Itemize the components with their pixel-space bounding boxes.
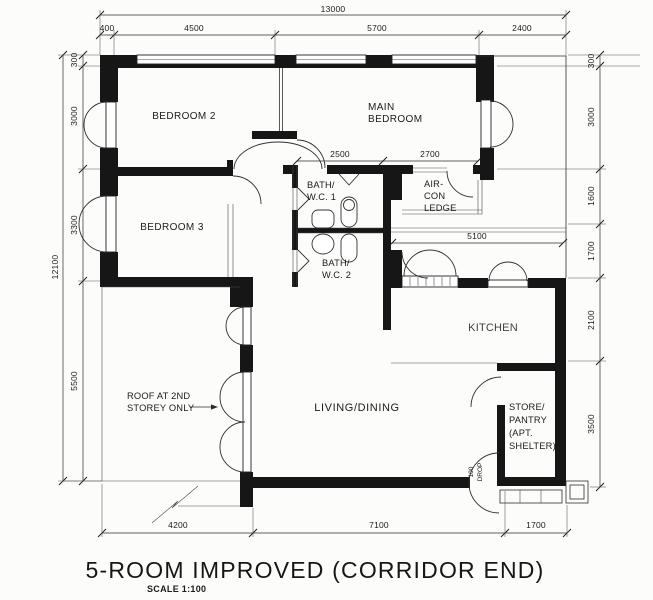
break-line <box>152 486 198 523</box>
dim-right-3000: 3000 <box>586 107 596 127</box>
room-label-kitchen: KITCHEN <box>468 322 518 334</box>
dim-top-4500: 4500 <box>184 23 204 33</box>
dim-mid-2500: 2500 <box>330 149 350 159</box>
window-living-west-upper <box>226 307 251 345</box>
dimension-right: 300 3000 1600 1700 2100 3500 <box>497 51 640 491</box>
roof-note-line1: ROOF AT 2ND <box>127 391 190 401</box>
room-label-aircon-1: AIR- <box>424 179 443 189</box>
roof-note-arrow-icon <box>211 404 218 409</box>
window-living-west-lower <box>220 372 251 472</box>
window-bedroom2-top <box>137 55 275 64</box>
dim-bottom-4200: 4200 <box>168 520 188 530</box>
floor-plan-sheet: 13000 400 4500 5700 2400 12100 300 3000 … <box>0 0 653 600</box>
dim-left-total: 12100 <box>50 255 60 280</box>
dim-left-3000: 3000 <box>69 106 79 126</box>
dim-bottom-7100: 7100 <box>369 520 389 530</box>
store-door-arc <box>471 377 501 407</box>
dim-mid-2700: 2700 <box>420 149 440 159</box>
window-main-bedroom-top-2 <box>392 55 476 64</box>
kitchen-door-right-arc <box>430 250 456 276</box>
room-label-aircon-3: LEDGE <box>424 203 457 213</box>
bedroom2-door-arc <box>234 142 278 169</box>
room-label-aircon-2: CON <box>424 191 445 201</box>
aircon-ledge-door-arc <box>447 171 473 197</box>
room-label-store-2: PANTRY <box>509 415 547 425</box>
dim-left-5500: 5500 <box>69 371 79 391</box>
dim-top-total: 13000 <box>321 4 346 14</box>
store-ledge <box>500 490 562 503</box>
room-label-store-3: (APT. <box>509 428 533 438</box>
corridor-door-arc <box>278 142 322 169</box>
dimension-left: 12100 300 3000 3300 5500 <box>50 51 102 485</box>
window-main-bedroom-top-1 <box>296 55 366 64</box>
window-bedroom2-left <box>84 102 116 148</box>
drawing-scale: SCALE 1:100 <box>147 584 206 594</box>
window-bedroom3-left <box>79 196 116 252</box>
refuse-chute <box>566 481 588 503</box>
room-label-store-1: STORE/ <box>509 402 545 412</box>
room-label-bath2-1: BATH/ <box>322 258 350 268</box>
dim-left-300: 300 <box>69 53 79 68</box>
bath2-door-mark <box>298 250 309 272</box>
bath1-vent-mark <box>339 174 359 185</box>
kitchen-sill-counter <box>402 276 458 287</box>
kitchen-door-left-arc <box>404 250 430 276</box>
room-label-store-4: SHELTER) <box>509 441 556 451</box>
floor-plan-drawing: 13000 400 4500 5700 2400 12100 300 3000 … <box>0 0 653 600</box>
dim-mid-5100: 5100 <box>467 231 487 241</box>
roof-note-line2: STOREY ONLY <box>127 403 194 413</box>
dim-right-300: 300 <box>586 54 596 69</box>
dim-right-1600: 1600 <box>586 186 596 206</box>
yard-door-right-arc <box>508 262 527 281</box>
entrance-drop-100: 100 <box>468 466 475 477</box>
entrance-drop-label: DROP <box>477 463 484 482</box>
dim-top-5700: 5700 <box>367 23 387 33</box>
bath2-basin <box>312 234 334 254</box>
room-label-bedroom3: BEDROOM 3 <box>140 222 204 233</box>
dim-left-3300: 3300 <box>69 215 79 235</box>
dim-bottom-1700: 1700 <box>526 520 546 530</box>
room-label-bath1-2: W.C. 1 <box>307 192 336 202</box>
dim-top-400: 400 <box>100 23 115 33</box>
bath1-cistern <box>344 200 355 211</box>
entrance-door-arc <box>469 453 499 513</box>
room-label-main-bedroom-1: MAIN <box>368 102 395 113</box>
room-label-bedroom2: BEDROOM 2 <box>152 111 216 122</box>
room-label-bath2-2: W.C. 2 <box>322 270 351 280</box>
dim-right-2100: 2100 <box>586 310 596 330</box>
yard-door-left-arc <box>489 262 508 281</box>
window-main-bedroom-east <box>481 100 513 148</box>
annotations: ROOF AT 2ND STOREY ONLY 100 DROP <box>127 391 484 481</box>
title-block: 5-ROOM IMPROVED (CORRIDOR END) SCALE 1:1… <box>86 557 545 594</box>
bedroom3-door-arc <box>233 176 261 204</box>
bath1-basin <box>312 210 334 228</box>
dim-right-1700: 1700 <box>586 241 596 261</box>
dimension-top: 13000 400 4500 5700 2400 <box>96 4 570 56</box>
room-label-main-bedroom-2: BEDROOM <box>368 114 422 125</box>
room-label-bath1-1: BATH/ <box>307 180 335 190</box>
kitchen-sill-2 <box>488 280 528 287</box>
dim-top-2400: 2400 <box>512 23 532 33</box>
room-label-living-dining: LIVING/DINING <box>314 402 399 414</box>
dim-right-3500: 3500 <box>586 414 596 434</box>
drawing-title: 5-ROOM IMPROVED (CORRIDOR END) <box>86 557 545 583</box>
